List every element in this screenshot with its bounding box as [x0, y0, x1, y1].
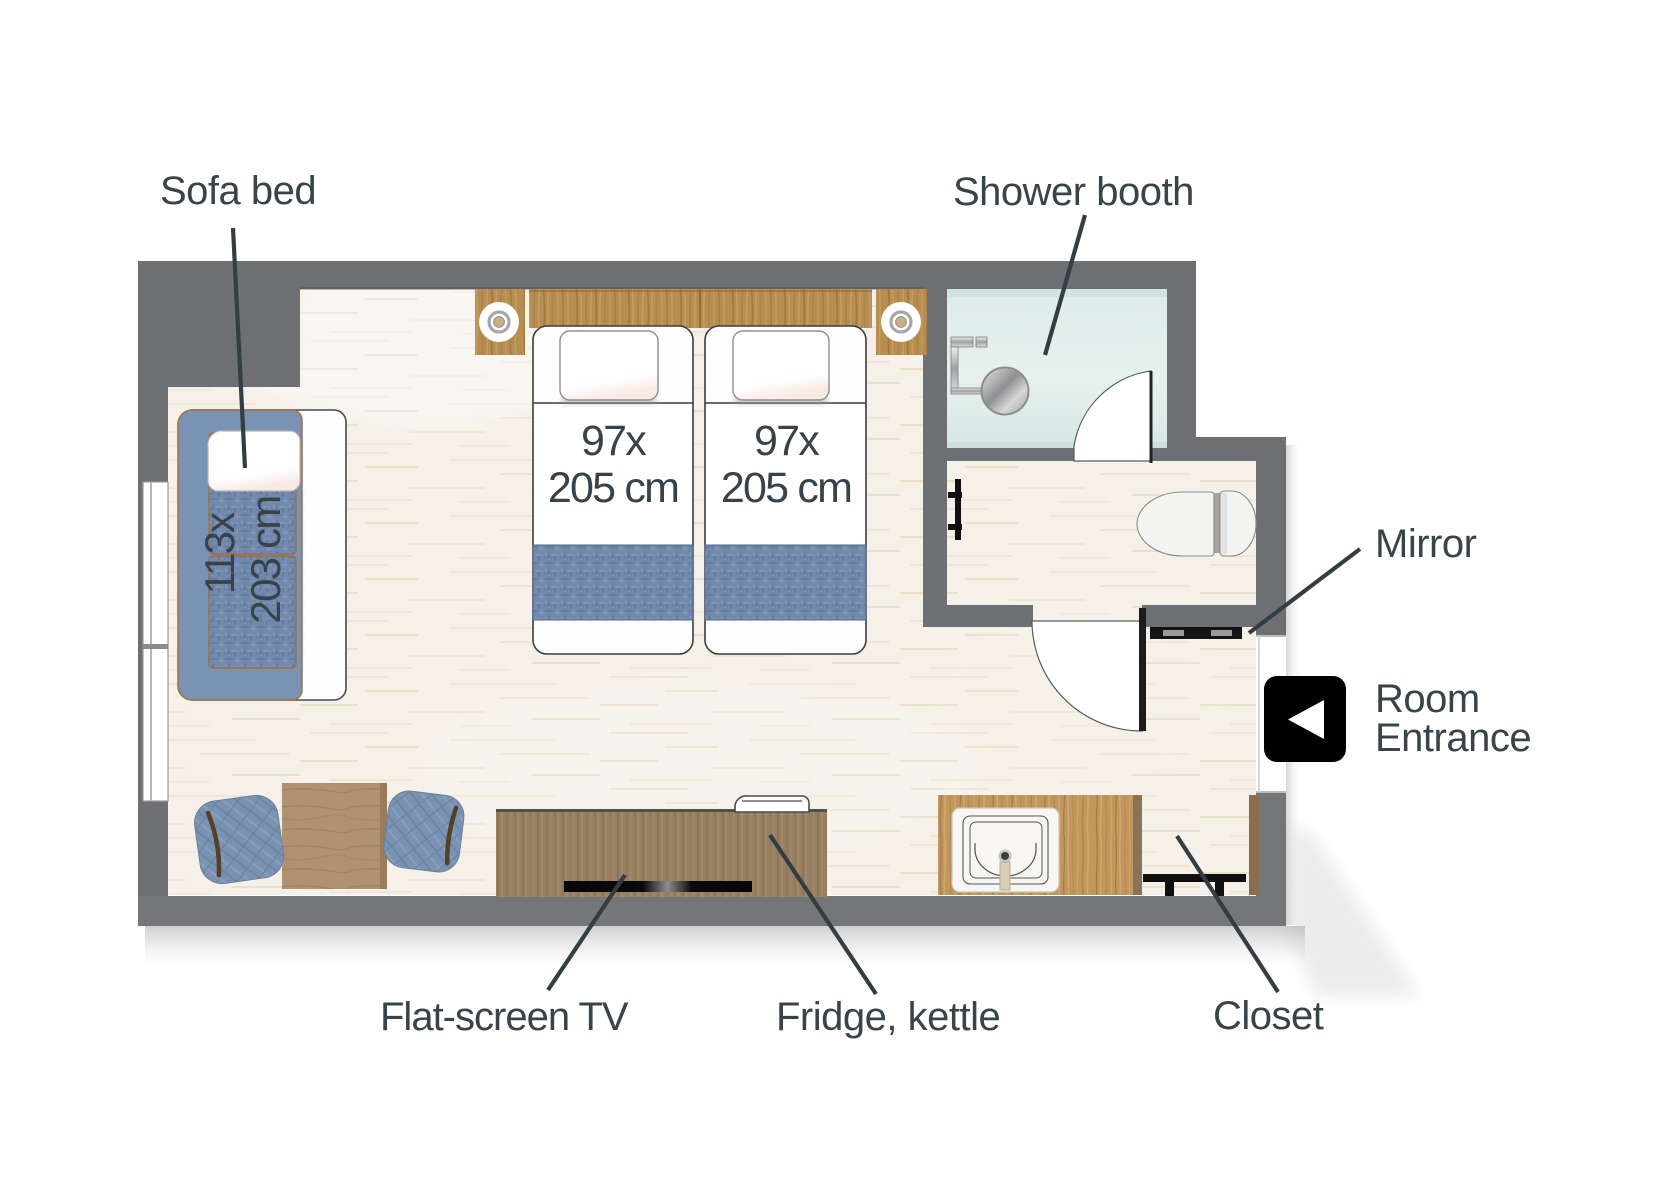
- svg-text:97x: 97x: [754, 417, 820, 465]
- svg-text:205 cm: 205 cm: [548, 464, 678, 512]
- svg-text:Mirror: Mirror: [1375, 522, 1477, 566]
- svg-text:Room: Room: [1375, 677, 1480, 721]
- svg-text:Fridge, kettle: Fridge, kettle: [776, 995, 1000, 1039]
- svg-text:Entrance: Entrance: [1375, 716, 1531, 760]
- svg-text:Closet: Closet: [1213, 994, 1324, 1038]
- svg-text:Shower booth: Shower booth: [953, 170, 1194, 214]
- svg-text:203 cm: 203 cm: [242, 497, 289, 624]
- svg-text:113x: 113x: [196, 512, 243, 595]
- svg-text:205 cm: 205 cm: [721, 464, 851, 512]
- svg-text:Flat-screen TV: Flat-screen TV: [380, 995, 629, 1039]
- svg-text:97x: 97x: [581, 417, 647, 465]
- svg-text:Sofa bed: Sofa bed: [160, 169, 316, 213]
